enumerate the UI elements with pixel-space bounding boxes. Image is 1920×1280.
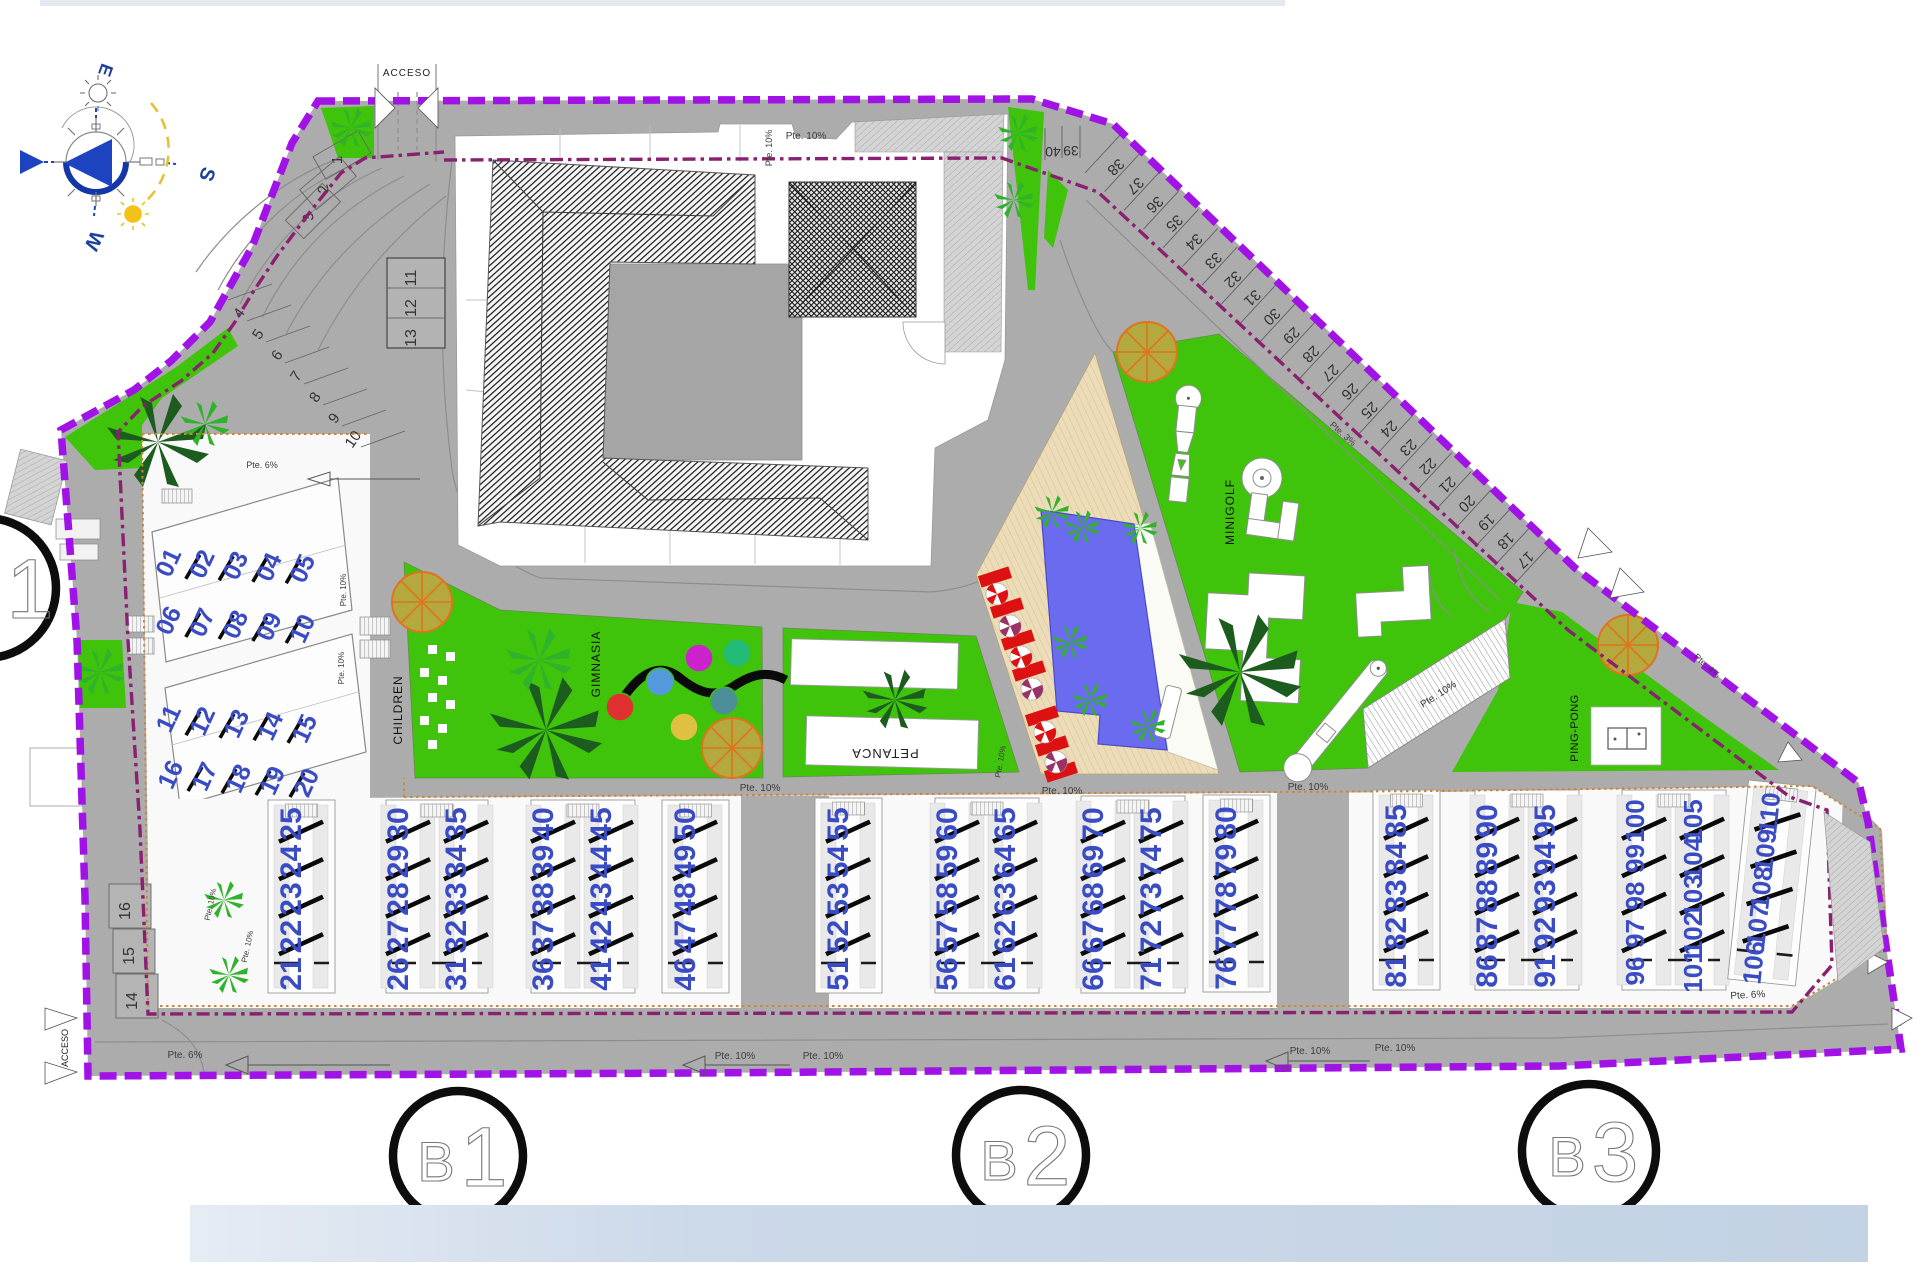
svg-text:98: 98 xyxy=(1620,882,1650,911)
svg-text:99: 99 xyxy=(1620,844,1650,873)
svg-text:64: 64 xyxy=(989,845,1022,879)
svg-text:58: 58 xyxy=(931,882,964,915)
svg-text:57: 57 xyxy=(931,920,964,953)
svg-text:Pte. 6%: Pte. 6% xyxy=(167,1050,202,1061)
svg-text:33: 33 xyxy=(440,882,473,915)
svg-text:15: 15 xyxy=(121,947,138,965)
svg-text:Pte. 10%: Pte. 10% xyxy=(337,652,346,684)
svg-text:MINIGOLF: MINIGOLF xyxy=(1223,479,1237,545)
svg-text:66: 66 xyxy=(1077,957,1110,990)
svg-text:65: 65 xyxy=(989,807,1022,840)
svg-text:Pte. 10%: Pte. 10% xyxy=(740,783,781,794)
svg-text:85: 85 xyxy=(1380,804,1413,837)
svg-text:44: 44 xyxy=(585,845,618,879)
svg-text:32: 32 xyxy=(440,920,473,953)
svg-text:53: 53 xyxy=(822,882,855,915)
svg-text:69: 69 xyxy=(1077,845,1110,878)
svg-text:94: 94 xyxy=(1529,842,1562,876)
svg-text:71: 71 xyxy=(1135,957,1168,990)
svg-text:89: 89 xyxy=(1471,842,1504,875)
svg-text:81: 81 xyxy=(1380,954,1413,987)
svg-text:B: B xyxy=(1548,1125,1585,1188)
svg-text:43: 43 xyxy=(585,882,618,915)
svg-text:38: 38 xyxy=(527,882,560,915)
svg-text:13: 13 xyxy=(403,329,420,347)
svg-text:49: 49 xyxy=(669,845,702,878)
svg-text:48: 48 xyxy=(669,882,702,915)
svg-text:63: 63 xyxy=(989,882,1022,915)
svg-text:Pte. 6%: Pte. 6% xyxy=(1730,989,1766,1002)
svg-text:110: 110 xyxy=(1752,791,1786,836)
svg-text:31: 31 xyxy=(440,957,473,990)
svg-text:29: 29 xyxy=(382,845,415,878)
svg-text:27: 27 xyxy=(382,920,415,953)
svg-text:2: 2 xyxy=(1024,1109,1071,1203)
svg-text:24: 24 xyxy=(275,845,308,879)
svg-text:97: 97 xyxy=(1620,919,1650,948)
svg-text:100: 100 xyxy=(1620,799,1650,842)
svg-text:21: 21 xyxy=(275,957,308,990)
svg-text:35: 35 xyxy=(440,807,473,840)
svg-text:B: B xyxy=(417,1130,454,1193)
svg-text:B: B xyxy=(980,1129,1017,1192)
svg-text:75: 75 xyxy=(1135,807,1168,840)
svg-text:68: 68 xyxy=(1077,882,1110,915)
svg-text:51: 51 xyxy=(822,957,855,990)
svg-text:Pte. 10%: Pte. 10% xyxy=(1375,1043,1416,1054)
svg-text:76: 76 xyxy=(1210,956,1243,989)
svg-text:Pte. 10%: Pte. 10% xyxy=(786,131,827,142)
svg-text:22: 22 xyxy=(275,920,308,953)
svg-text:Pte. 10%: Pte. 10% xyxy=(1042,786,1083,797)
svg-text:52: 52 xyxy=(822,920,855,953)
svg-text:PING-PONG: PING-PONG xyxy=(1569,694,1581,761)
svg-text:74: 74 xyxy=(1135,845,1168,879)
svg-text:80: 80 xyxy=(1210,806,1243,839)
svg-text:72: 72 xyxy=(1135,920,1168,953)
svg-text:87: 87 xyxy=(1471,917,1504,950)
svg-text:34: 34 xyxy=(440,845,473,879)
svg-text:77: 77 xyxy=(1210,919,1243,952)
svg-text:23: 23 xyxy=(275,882,308,915)
svg-text:91: 91 xyxy=(1529,954,1562,987)
svg-text:50: 50 xyxy=(669,807,702,840)
svg-text:82: 82 xyxy=(1380,917,1413,950)
svg-text:55: 55 xyxy=(822,807,855,840)
svg-text:67: 67 xyxy=(1077,920,1110,953)
svg-text:62: 62 xyxy=(989,920,1022,953)
svg-text:70: 70 xyxy=(1077,807,1110,840)
svg-text:Pte. 10%: Pte. 10% xyxy=(764,130,774,167)
svg-text:26: 26 xyxy=(382,957,415,990)
svg-text:92: 92 xyxy=(1529,917,1562,950)
svg-text:47: 47 xyxy=(669,920,702,953)
svg-text:42: 42 xyxy=(585,920,618,953)
svg-text:CHILDREN: CHILDREN xyxy=(391,675,405,744)
svg-text:60: 60 xyxy=(931,807,964,840)
svg-text:84: 84 xyxy=(1380,842,1413,876)
svg-text:16: 16 xyxy=(117,902,134,920)
svg-text:46: 46 xyxy=(669,957,702,990)
svg-text:ACCESO: ACCESO xyxy=(60,1029,70,1067)
svg-text:39: 39 xyxy=(527,845,560,878)
svg-text:88: 88 xyxy=(1471,879,1504,912)
svg-text:Pte. 10%: Pte. 10% xyxy=(1290,1046,1331,1057)
svg-text:90: 90 xyxy=(1471,804,1504,837)
svg-text:Pte. 6%: Pte. 6% xyxy=(246,460,278,470)
svg-text:14: 14 xyxy=(124,992,141,1010)
svg-text:105: 105 xyxy=(1678,799,1708,842)
svg-text:56: 56 xyxy=(931,957,964,990)
svg-text:30: 30 xyxy=(382,807,415,840)
svg-text:25: 25 xyxy=(275,807,308,840)
svg-text:95: 95 xyxy=(1529,804,1562,837)
svg-text:79: 79 xyxy=(1210,844,1243,877)
svg-text:73: 73 xyxy=(1135,882,1168,915)
svg-text:39: 39 xyxy=(1063,143,1079,159)
svg-text:86: 86 xyxy=(1471,954,1504,987)
svg-text:28: 28 xyxy=(382,882,415,915)
svg-text:93: 93 xyxy=(1529,879,1562,912)
svg-text:41: 41 xyxy=(585,957,618,990)
svg-text:40: 40 xyxy=(1045,144,1061,160)
svg-text:61: 61 xyxy=(989,957,1022,990)
svg-text:PETANCA: PETANCA xyxy=(851,746,918,761)
svg-text:GIMNASIA: GIMNASIA xyxy=(589,631,603,698)
svg-text:12: 12 xyxy=(403,299,420,317)
svg-text:54: 54 xyxy=(822,845,855,879)
svg-text:45: 45 xyxy=(585,807,618,840)
svg-text:1: 1 xyxy=(7,542,54,636)
svg-text:Pte. 10%: Pte. 10% xyxy=(1288,782,1329,793)
svg-text:36: 36 xyxy=(527,957,560,990)
svg-text:78: 78 xyxy=(1210,881,1243,914)
svg-text:11: 11 xyxy=(403,270,420,287)
svg-text:Pte. 10%: Pte. 10% xyxy=(803,1051,844,1062)
svg-text:ACCESO: ACCESO xyxy=(383,68,431,79)
svg-text:Pte. 10%: Pte. 10% xyxy=(715,1051,756,1062)
svg-text:96: 96 xyxy=(1620,957,1650,986)
svg-text:3: 3 xyxy=(1592,1105,1639,1199)
svg-text:Pte. 10%: Pte. 10% xyxy=(339,574,348,606)
svg-text:59: 59 xyxy=(931,845,964,878)
svg-text:83: 83 xyxy=(1380,879,1413,912)
svg-text:37: 37 xyxy=(527,920,560,953)
svg-text:40: 40 xyxy=(527,807,560,840)
svg-text:1: 1 xyxy=(461,1110,508,1204)
